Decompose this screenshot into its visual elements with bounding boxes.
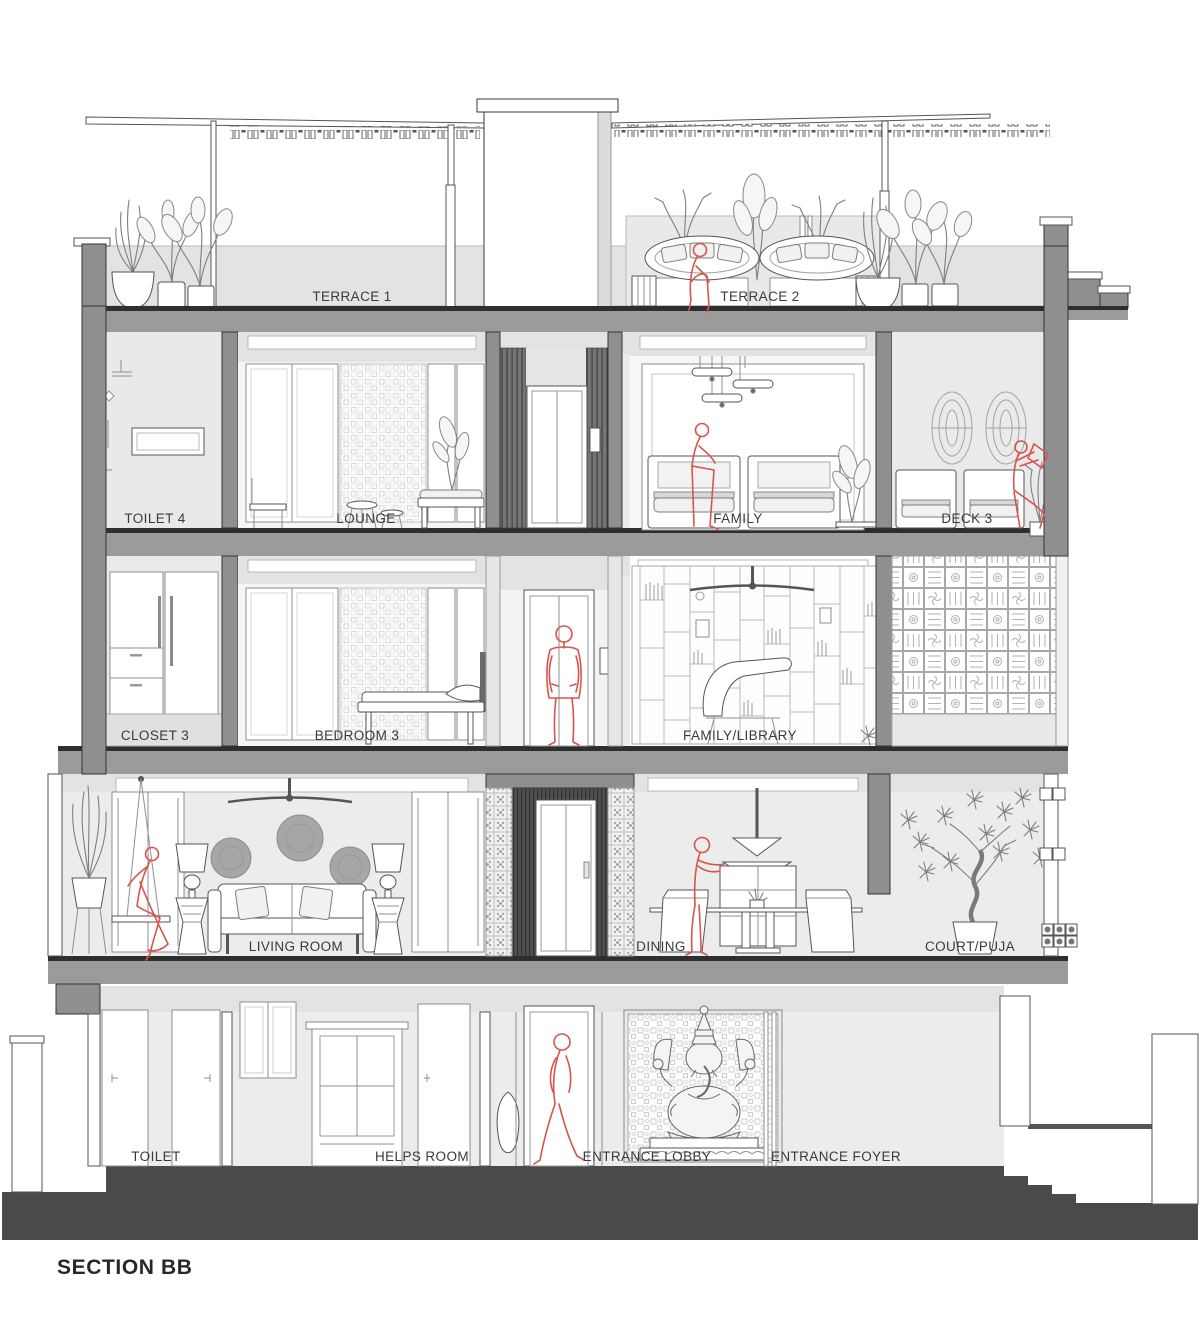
third-floor xyxy=(104,332,1068,536)
room-label-terrace-1: TERRACE 1 xyxy=(312,289,391,304)
architectural-section-drawing: TERRACE 1 TERRACE 2 TOILET 4 LOUNGE FAMI… xyxy=(0,0,1200,1320)
deck-3-room xyxy=(892,332,1053,536)
family-room-3f xyxy=(630,332,876,530)
room-label-toilet: TOILET xyxy=(131,1149,180,1164)
elevator-door xyxy=(524,1006,594,1166)
bedroom-3-room xyxy=(238,556,486,746)
flower-blocks xyxy=(1042,924,1077,947)
roof-bulkhead xyxy=(477,99,618,308)
room-label-bedroom-3: BEDROOM 3 xyxy=(315,728,400,743)
tile-column xyxy=(608,788,634,956)
room-label-living-room: LIVING ROOM xyxy=(249,939,343,954)
mirror xyxy=(132,428,204,455)
room-label-dining: DINING xyxy=(636,939,686,954)
pergola-post xyxy=(211,121,216,308)
entrance-lobby xyxy=(497,1006,782,1166)
mashrabiya-panel xyxy=(340,588,426,740)
room-label-lounge: LOUNGE xyxy=(336,511,395,526)
pillow xyxy=(235,886,269,920)
room-label-entrance-lobby: ENTRANCE LOBBY xyxy=(583,1149,712,1164)
foyer-east-wall xyxy=(1000,996,1030,1126)
glazed-door xyxy=(306,1022,408,1166)
east-wall xyxy=(1044,246,1068,556)
site-wall-right xyxy=(1152,1034,1198,1204)
second-floor xyxy=(106,556,1068,746)
west-wall xyxy=(82,306,106,774)
hanging-wall xyxy=(868,774,890,894)
mashrabiya-panel xyxy=(340,364,426,522)
dining-chair xyxy=(806,890,854,952)
elevator-1f xyxy=(486,774,634,956)
pergola-slats xyxy=(230,126,480,139)
room-label-court-puja: COURT/PUJA xyxy=(925,939,1015,954)
pillow xyxy=(299,886,333,920)
room-label-terrace-2: TERRACE 2 xyxy=(720,289,799,304)
ganesha-shrine xyxy=(624,1006,782,1162)
site-fence-top xyxy=(1028,1124,1152,1129)
room-label-family-library: FAMILY/LIBRARY xyxy=(683,728,797,743)
edge-beam xyxy=(56,984,100,1014)
table-lamp-left xyxy=(176,844,208,954)
site-wall-left xyxy=(12,1040,42,1192)
room-label-toilet-4: TOILET 4 xyxy=(124,511,185,526)
partition-wall xyxy=(480,1012,490,1166)
table-lamp-right xyxy=(372,844,404,954)
living-west-wall xyxy=(48,774,62,956)
lounge-room xyxy=(238,332,486,528)
gf-west-wall xyxy=(88,1014,100,1166)
tile-column xyxy=(486,788,512,956)
room-label-closet-3: CLOSET 3 xyxy=(121,728,189,743)
elevator-3f xyxy=(486,332,622,528)
library-room xyxy=(630,556,877,746)
room-label-family: FAMILY xyxy=(713,511,762,526)
room-label-helps-room: HELPS ROOM xyxy=(375,1149,469,1164)
entrance-foyer xyxy=(1000,996,1030,1126)
partition-wall xyxy=(222,1012,232,1166)
pergola-slats xyxy=(614,124,1050,137)
closet-3-room xyxy=(106,556,222,746)
drawing-title: SECTION BB xyxy=(57,1256,193,1279)
room-label-entrance-foyer: ENTRANCE FOYER xyxy=(771,1149,901,1164)
ground-floor xyxy=(56,984,1030,1166)
first-floor xyxy=(48,774,1077,956)
site-wall-left-cap xyxy=(10,1036,44,1043)
toilet-4-room xyxy=(104,332,222,528)
terrace-level xyxy=(74,99,1130,320)
room-label-deck-3: DECK 3 xyxy=(941,511,992,526)
jali-screen xyxy=(892,556,1068,746)
section-bb-canvas: TERRACE 1 TERRACE 2 TOILET 4 LOUNGE FAMI… xyxy=(0,0,1200,1320)
ground-mass xyxy=(2,1166,1198,1240)
